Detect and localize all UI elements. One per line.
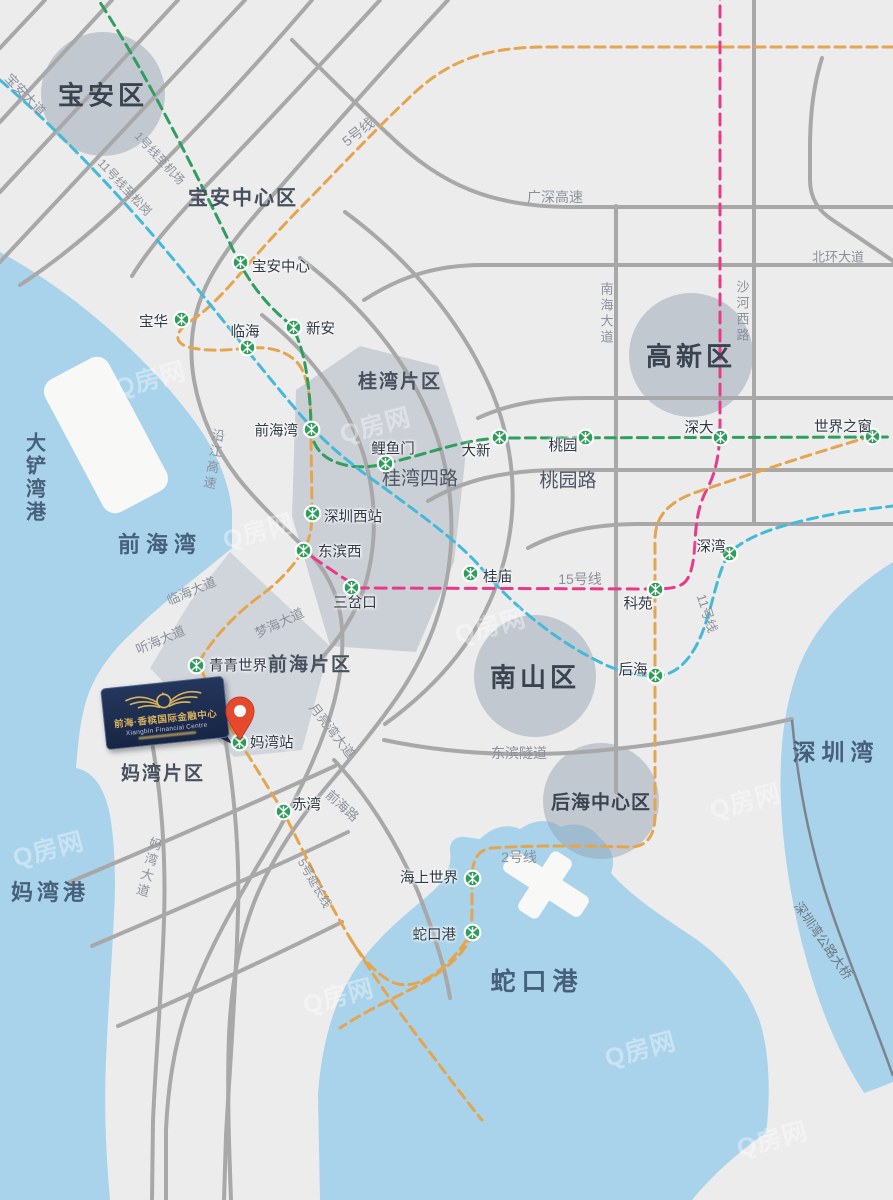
location-pin-icon xyxy=(220,694,260,747)
water-mawan-port xyxy=(0,768,115,1200)
base-map-svg xyxy=(0,0,893,1200)
district-circle xyxy=(474,615,596,737)
district-circle xyxy=(543,743,659,859)
district-circle xyxy=(41,32,165,156)
map-canvas: 宝安区高新区南山区后海中心区前海湾大铲湾港妈湾港蛇口港深圳湾宝安中心区桂湾片区前… xyxy=(0,0,893,1200)
project-logo-callout: 前海·香槟国际金融中心 Xiangbin Financial Centre xyxy=(100,676,230,751)
